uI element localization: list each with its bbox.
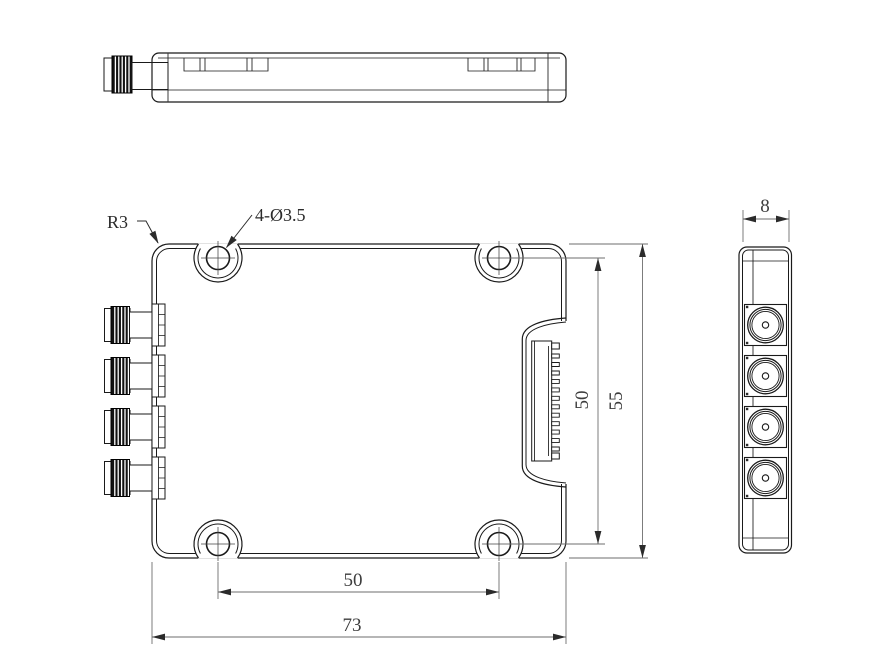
sma-connector-face bbox=[745, 305, 787, 346]
side-body-outline bbox=[739, 247, 792, 553]
front-body-outline bbox=[152, 244, 566, 558]
dim-arrow bbox=[595, 258, 602, 271]
extension-lines bbox=[152, 210, 789, 644]
dim-overall-width: 73 bbox=[343, 615, 362, 636]
annotations: R3 4-Ø3.5 bbox=[107, 205, 306, 250]
dim-side-thickness: 8 bbox=[760, 196, 770, 217]
sma-connector-side bbox=[105, 304, 166, 346]
sma-connector-side bbox=[105, 457, 166, 499]
dim-arrow bbox=[595, 531, 602, 544]
dimensions: 50 55 50 73 8 bbox=[152, 196, 789, 644]
corner-radius-label: R3 bbox=[107, 212, 128, 232]
leader-arrow bbox=[149, 231, 161, 246]
engineering-drawing-canvas: R3 4-Ø3.5 50 55 50 73 8 bbox=[0, 0, 890, 668]
pin-header-connector bbox=[522, 318, 575, 487]
sma-connector-face bbox=[745, 356, 787, 397]
dim-arrow bbox=[218, 589, 231, 596]
top-view bbox=[104, 53, 566, 102]
dim-hole-pitch-horizontal: 50 bbox=[344, 570, 363, 591]
connector-end-tab bbox=[552, 453, 560, 459]
sma-connector-side bbox=[105, 406, 166, 448]
side-view bbox=[739, 247, 792, 553]
sma-connector-side bbox=[105, 355, 166, 397]
front-view bbox=[105, 241, 576, 561]
top-view-body bbox=[152, 53, 566, 102]
dim-arrow bbox=[486, 589, 499, 596]
hole-callout-label: 4-Ø3.5 bbox=[255, 205, 306, 225]
dim-arrow bbox=[743, 216, 756, 223]
dim-arrow bbox=[152, 634, 165, 641]
sma-connector-face bbox=[745, 407, 787, 448]
dim-overall-height: 55 bbox=[606, 392, 627, 411]
front-body-inner-outline bbox=[157, 249, 562, 554]
engineering-drawing: R3 4-Ø3.5 50 55 50 73 8 bbox=[0, 0, 890, 668]
sma-connector-face bbox=[745, 458, 787, 499]
dim-arrow bbox=[776, 216, 789, 223]
dim-hole-pitch-vertical: 50 bbox=[572, 391, 593, 410]
connector-end-tab bbox=[552, 343, 560, 349]
dim-arrow bbox=[639, 545, 646, 558]
dim-arrow bbox=[553, 634, 566, 641]
dim-arrow bbox=[639, 244, 646, 257]
